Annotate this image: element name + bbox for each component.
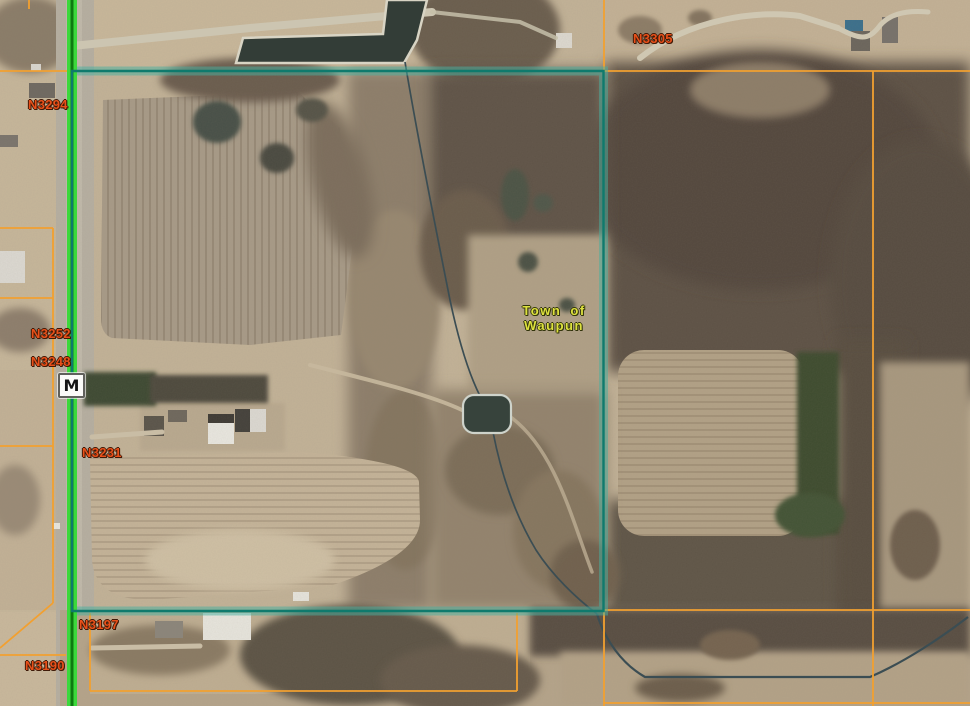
address-label-n3231: N3231: [82, 445, 122, 460]
map-canvas: [0, 0, 970, 706]
address-label-n3190: N3190: [25, 658, 65, 673]
pond: [463, 395, 511, 433]
photo-grain: [0, 0, 970, 706]
address-label-n3252: N3252: [31, 326, 71, 341]
town-label-line1: Town of: [506, 303, 602, 318]
address-label-n3248: N3248: [31, 354, 71, 369]
town-label-line2: Waupun: [506, 318, 602, 333]
aerial-map-viewport[interactable]: N3294 N3252 N3248 N3231 N3197 N3190 N330…: [0, 0, 970, 706]
town-label: Town of Waupun: [506, 303, 602, 333]
address-label-n3197: N3197: [79, 617, 119, 632]
address-label-n3294: N3294: [28, 97, 68, 112]
address-label-n3305: N3305: [633, 31, 673, 46]
county-highway-shield-label: M: [64, 378, 80, 394]
county-highway-shield: M: [58, 373, 85, 398]
